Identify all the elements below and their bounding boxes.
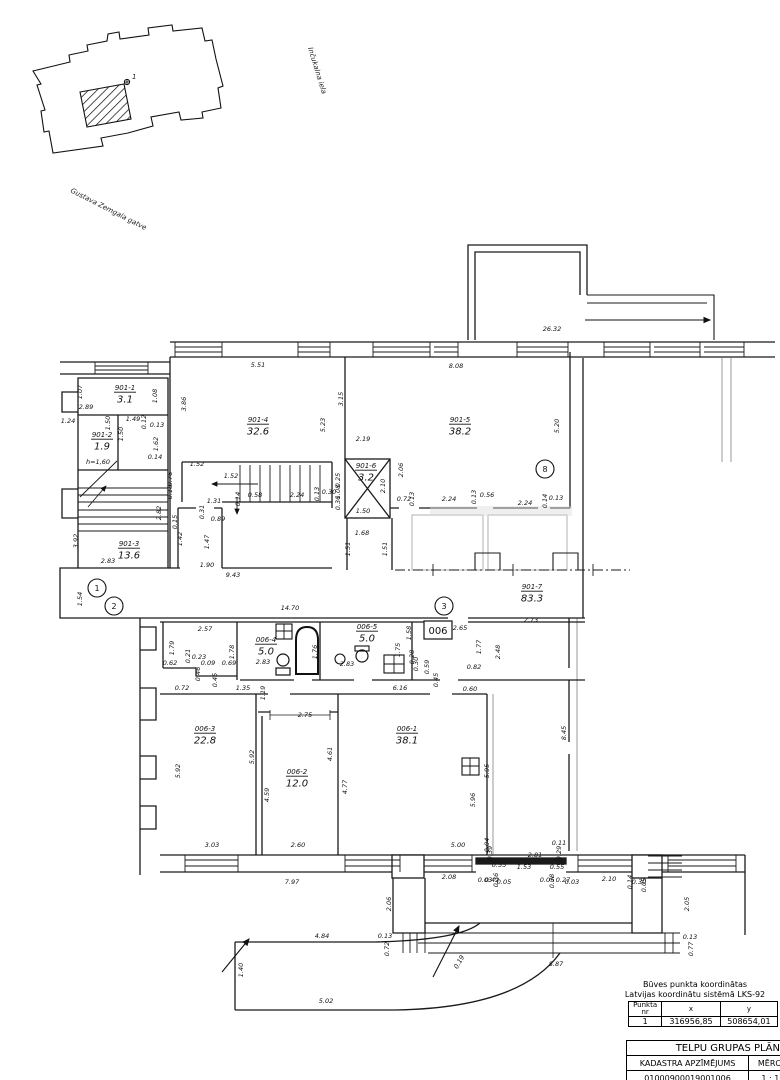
ramp-arrow-2 (433, 926, 459, 977)
dimension-label: 8.87 (549, 960, 564, 968)
marker-number: 8 (542, 465, 547, 474)
dimension-label: 0.03 (565, 878, 579, 886)
point-markers: 1238 (88, 460, 554, 615)
dimension-label: 6.16 (393, 684, 407, 692)
dimension-label: 8.45 (560, 726, 568, 740)
room-id: 901-5 (450, 416, 471, 424)
dimension-label: 0.31 (198, 505, 206, 519)
dimension-label: h=1,60 (86, 458, 110, 466)
dimension-label: 0.89 (211, 515, 225, 523)
dimension-label: 2.10 (602, 875, 616, 883)
cell-x-value: 316956,85 (662, 1017, 721, 1027)
marker-number: 2 (111, 602, 116, 611)
dimension-label: 0.14 (234, 492, 242, 506)
dimension-label: 4.84 (315, 932, 329, 940)
dimension-label: 1.19 (259, 686, 267, 700)
dimension-label: 1.79 (168, 641, 176, 655)
dimension-label: 0.76 (166, 472, 174, 486)
point-marker-2: 2 (105, 597, 123, 615)
dimension-label: 1.51 (344, 542, 352, 556)
dimension-label: 2.24 (442, 495, 456, 503)
room-id: 006-3 (195, 725, 215, 733)
dimension-label: 0.36 (334, 496, 342, 510)
title-block: TELPU GRUPAS PLĀNS KADASTRA APZĪMĒJUMS M… (626, 1040, 780, 1080)
dimension-label: 4.59 (263, 788, 271, 802)
dimension-label: 3.92 (72, 534, 80, 548)
dimension-label: 5.96 (469, 793, 477, 807)
dimension-label: 0.39 (486, 846, 494, 860)
window-symbols (95, 342, 744, 872)
dimension-label: 2.24 (518, 499, 532, 507)
dimension-label: 0.09 (201, 659, 215, 667)
dimension-label: 0.77 (687, 941, 695, 956)
dimension-label: 0.13 (313, 487, 321, 501)
dimension-label: 2.82 (155, 506, 163, 520)
room-area: 22.8 (194, 736, 216, 747)
dimension-label: 1.47 (203, 534, 211, 549)
stair-diagonal (80, 461, 117, 497)
dimension-label: 0.29 (555, 846, 563, 860)
toilet-006-4 (277, 654, 289, 666)
dimension-label: 1.50 (104, 416, 112, 430)
dimension-label: 0.19 (452, 954, 466, 971)
dimension-label: 0.45 (211, 673, 219, 687)
point-marker-8: 8 (536, 460, 554, 478)
room-label-901-3: 901-313.6 (118, 540, 140, 562)
dimension-label: 1.52 (190, 460, 204, 468)
room-id: 901-1 (115, 384, 135, 392)
dimension-label: 2.83 (101, 557, 115, 565)
dimension-label: 4.61 (326, 747, 334, 761)
room-id: 006-4 (256, 636, 276, 644)
cadastre-value: 01000900019001006 (627, 1071, 749, 1080)
dimension-label: 2.89 (79, 403, 93, 411)
dimension-label: 0.30 (412, 657, 420, 671)
coordinates-caption-2: Latvijas koordinātu sistēmā LKS-92 (612, 990, 778, 1000)
dimension-label: 1.50 (356, 507, 370, 515)
toilet-006-5 (356, 650, 368, 662)
dimension-label: 0.55 (492, 861, 506, 869)
dimension-label: 2.08 (442, 873, 456, 881)
dimension-label: 1.62 (152, 437, 160, 451)
dimension-label: 5.00 (451, 841, 465, 849)
site-point-label: 1 (132, 73, 136, 81)
dimension-label: 0.69 (222, 659, 236, 667)
point-marker-3: 3 (435, 597, 453, 615)
dimension-label: 9.43 (226, 571, 240, 579)
dimension-labels: 26.325.518.083.863.155.235.201.071.082.8… (61, 325, 697, 1005)
room-label-901-7: 901-783.3 (521, 583, 543, 605)
dimension-label: 5.51 (251, 361, 265, 369)
dimension-label: 0.46 (194, 667, 202, 681)
marker-number: 1 (94, 584, 99, 593)
room-id: 901-7 (522, 583, 543, 591)
dimension-label: 0.13 (150, 421, 164, 429)
dimension-label: 0.18 (166, 485, 174, 499)
table-row: 1 316956,85 508654,01 (629, 1017, 778, 1027)
room-area: 32.6 (247, 427, 269, 438)
dimension-label: 7.97 (285, 878, 300, 886)
dimension-label: 0.05 (497, 878, 511, 886)
coordinates-table: Būves punkta koordinātas Latvijas koordi… (612, 980, 778, 1027)
point-marker-1: 1 (88, 579, 106, 597)
dimension-label: 0.13 (378, 932, 392, 940)
dimension-label: 0.56 (480, 491, 494, 499)
dimension-label: 1.52 (224, 472, 238, 480)
cell-point-nr: 1 (629, 1017, 662, 1027)
dimension-label: 4.77 (341, 779, 349, 794)
room-label-006-3: 006-322.8 (194, 725, 216, 747)
dimension-label: 1.42 (176, 532, 184, 546)
dimension-label: 1.40 (237, 963, 245, 977)
dimension-label: 0.13 (470, 490, 478, 504)
dimension-label: 3.15 (337, 392, 345, 406)
group-box-label: 006 (428, 626, 447, 637)
site-premises-hatch (80, 84, 131, 127)
dimension-label: 2.81 (528, 851, 542, 859)
dimension-label: 1.35 (236, 684, 250, 692)
col-header-point: Punkta nr (629, 1002, 662, 1017)
dimension-label: 1.51 (381, 542, 389, 556)
dimension-label: 2.48 (494, 645, 502, 659)
scale-value: 1 : 100 (749, 1071, 780, 1080)
room-label-006-1: 006-138.1 (396, 725, 418, 747)
floor-plan-drawing: 1 Inčukalna iela Gustava Zemgala gatve (0, 0, 780, 1080)
stairs (78, 461, 320, 531)
dimension-label: 2.75 (298, 711, 312, 719)
floor-plan-page: { "site_plan": { "street_1": "Inčukalna … (0, 0, 780, 1080)
dimension-label: 2.24 (290, 491, 304, 499)
col-header-y: y (720, 1002, 777, 1017)
room-label-901-6: 901-63.2 (355, 462, 377, 484)
dimension-label: 1.90 (200, 561, 214, 569)
dimension-label: 0.12 (140, 415, 148, 429)
dimension-label: 5.92 (174, 764, 182, 778)
room-label-901-2: 901-21.9 (91, 431, 113, 453)
dimension-label: 2.06 (397, 463, 405, 477)
dimension-label: 2.57 (198, 625, 213, 633)
dimension-label: 0.72 (383, 942, 391, 956)
cell-y-value: 508654,01 (720, 1017, 777, 1027)
dimension-label: 14.70 (281, 604, 300, 612)
site-plan-inset (33, 25, 223, 153)
dimension-label: 0.59 (423, 660, 431, 674)
room-label-006-4: 006-45.0 (255, 636, 277, 658)
room-area: 12.0 (286, 779, 308, 790)
dimension-label: 0.60 (463, 685, 477, 693)
room-id: 901-3 (119, 540, 139, 548)
marker-number: 3 (441, 602, 446, 611)
dimension-label: 26.32 (543, 325, 562, 333)
dimension-label: 5.92 (248, 750, 256, 764)
room-label-901-5: 901-538.2 (449, 416, 471, 438)
group-box: 006 (424, 621, 452, 639)
room-id: 006-2 (287, 768, 308, 776)
room-label-901-4: 901-432.6 (247, 416, 269, 438)
room-label-006-5: 006-55.0 (356, 623, 378, 645)
dimension-label: 0.58 (248, 491, 262, 499)
dimension-label: 5.23 (319, 418, 327, 432)
scale-label: MĒROGS (749, 1056, 780, 1071)
dimension-label: 1.50 (117, 427, 125, 441)
boundary-line (395, 553, 630, 576)
room-area: 38.1 (396, 736, 418, 747)
dimension-label: 0.13 (408, 492, 416, 506)
dimension-label: 0.13 (683, 933, 697, 941)
dimension-label: 3.03 (205, 841, 219, 849)
dimension-label: 1.24 (61, 417, 75, 425)
dimension-label: 2.19 (356, 435, 370, 443)
dimension-label: 0.15 (171, 515, 179, 529)
fixtures (276, 624, 479, 775)
dimension-label: 5.02 (319, 997, 333, 1005)
room-area: 13.6 (118, 551, 140, 562)
stair-arrow-up (88, 486, 106, 507)
dimension-label: 1.07 (76, 384, 84, 399)
room-id: 901-4 (248, 416, 268, 424)
dimension-label: 1.77 (475, 639, 483, 654)
cadastre-label: KADASTRA APZĪMĒJUMS (627, 1056, 749, 1071)
room-label-006-2: 006-212.0 (286, 768, 308, 790)
dimension-label: 5.20 (553, 419, 561, 433)
dimension-label: 2.05 (683, 897, 691, 911)
walls (60, 245, 775, 1010)
room-id: 006-1 (397, 725, 417, 733)
room-id: 006-5 (357, 623, 378, 631)
dimension-label: 1.08 (151, 389, 159, 403)
street-label-2: Gustava Zemgala gatve (69, 187, 148, 232)
room-area: 83.3 (521, 594, 543, 605)
dimension-label: 5.95 (483, 764, 491, 778)
dimension-label: 0.45 (432, 673, 440, 687)
street-label-1: Inčukalna iela (306, 46, 328, 95)
room-area: 3.1 (117, 395, 133, 406)
dimension-label: 2.10 (379, 479, 387, 493)
dimension-label: 2.83 (256, 658, 270, 666)
dimension-label: 0.55 (550, 863, 564, 871)
dimension-label: 0.14 (148, 453, 162, 461)
room-area: 5.0 (359, 634, 375, 645)
dimension-label: 2.73 (524, 616, 538, 624)
dimension-label: 3.86 (180, 397, 188, 411)
dimension-label: 0.13 (549, 494, 563, 502)
room-area: 3.2 (358, 473, 374, 484)
dimension-label: 1.68 (355, 529, 369, 537)
dimension-label: 1.31 (207, 497, 221, 505)
dimension-label: 2.06 (385, 897, 393, 911)
dimension-label: 1.49 (126, 415, 140, 423)
drawing-title: TELPU GRUPAS PLĀNS (627, 1041, 780, 1056)
dimension-label: 1.78 (228, 645, 236, 659)
dimension-label: 0.82 (467, 663, 481, 671)
dimension-label: 0.05 (640, 878, 648, 892)
col-header-x: x (662, 1002, 721, 1017)
room-area: 1.9 (94, 442, 110, 453)
dimension-label: 0.62 (163, 659, 177, 667)
dimension-label: 8.08 (449, 362, 463, 370)
dimension-label: 2.65 (453, 624, 467, 632)
dimension-label: 0.72 (175, 684, 189, 692)
room-id: 901-2 (92, 431, 113, 439)
room-area: 5.0 (258, 647, 274, 658)
dimension-label: 1.58 (405, 626, 413, 640)
dimension-label: 1.53 (517, 863, 531, 871)
room-label-901-1: 901-13.1 (114, 384, 136, 406)
room-area: 38.2 (449, 427, 471, 438)
dimension-label: 2.60 (291, 841, 305, 849)
dimension-label: 2.83 (340, 660, 354, 668)
site-building-outline (33, 25, 223, 153)
coordinates-caption-1: Būves punkta koordinātas (612, 980, 778, 990)
dimension-label: 1.76 (311, 645, 319, 659)
room-id: 901-6 (356, 462, 377, 470)
dimension-label: 1.54 (76, 592, 84, 606)
dimension-label: 1.75 (394, 643, 402, 657)
secondary-outlines (412, 506, 572, 570)
radiator-006-1 (462, 758, 479, 775)
